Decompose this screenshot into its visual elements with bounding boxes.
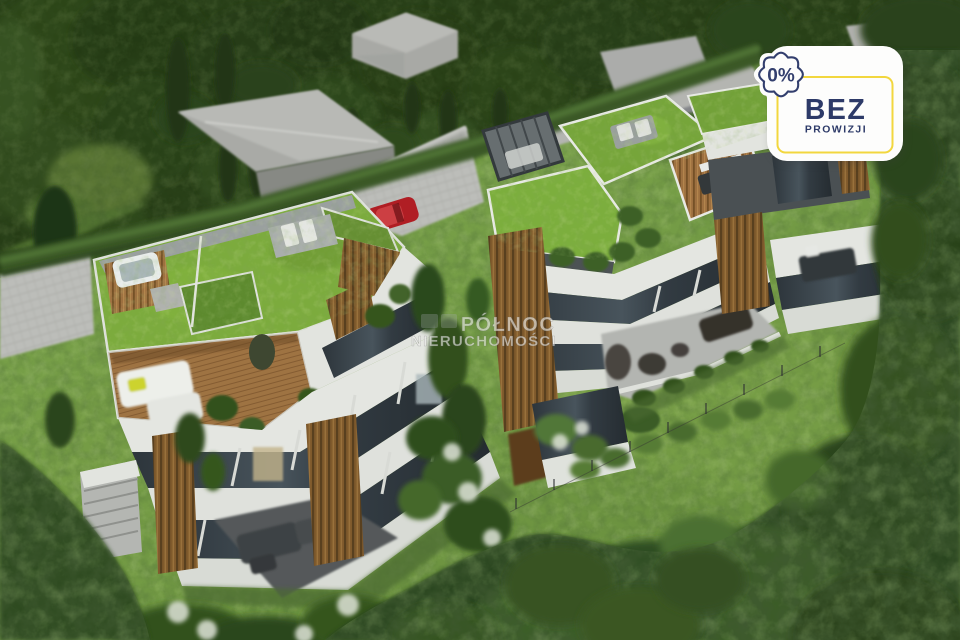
svg-text:BEZ: BEZ [805, 94, 867, 126]
svg-text:0%: 0% [767, 66, 795, 87]
svg-text:NIERUCHOMOŚCI: NIERUCHOMOŚCI [411, 332, 557, 350]
svg-text:PROWIZJI: PROWIZJI [805, 125, 867, 136]
